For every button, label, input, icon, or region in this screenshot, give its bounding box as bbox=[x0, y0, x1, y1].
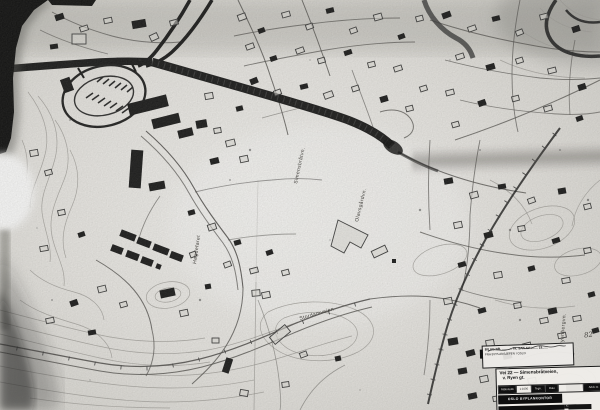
title-cell bbox=[558, 384, 583, 392]
title-cell: Målestokk bbox=[498, 386, 516, 393]
title-cell: Dato bbox=[544, 385, 558, 392]
map-photo: Simensbråtvn. Olavsgårdvn. Høgdefaret St… bbox=[0, 0, 600, 410]
handwritten-sheet-note: 82 bbox=[583, 330, 593, 339]
title-cell: Arkiv nr. bbox=[583, 384, 600, 392]
agency-bar: OSLO BYPLANKONTOR bbox=[498, 394, 562, 405]
stamp-box: BILAG NR. ........... TIL SAK AV .......… bbox=[482, 342, 575, 368]
title-block-bottom-bars bbox=[498, 403, 600, 410]
bottom-bar bbox=[498, 404, 564, 410]
footer-right-cell: Kontroll bbox=[562, 393, 600, 403]
title-cell: 1:1000 bbox=[516, 386, 531, 393]
bottom-bar bbox=[568, 403, 591, 409]
title-cell: Tegn. bbox=[531, 385, 545, 392]
title-block: Vei 22 — Simensbråtveien, v. Ryen gt. Må… bbox=[495, 366, 600, 410]
